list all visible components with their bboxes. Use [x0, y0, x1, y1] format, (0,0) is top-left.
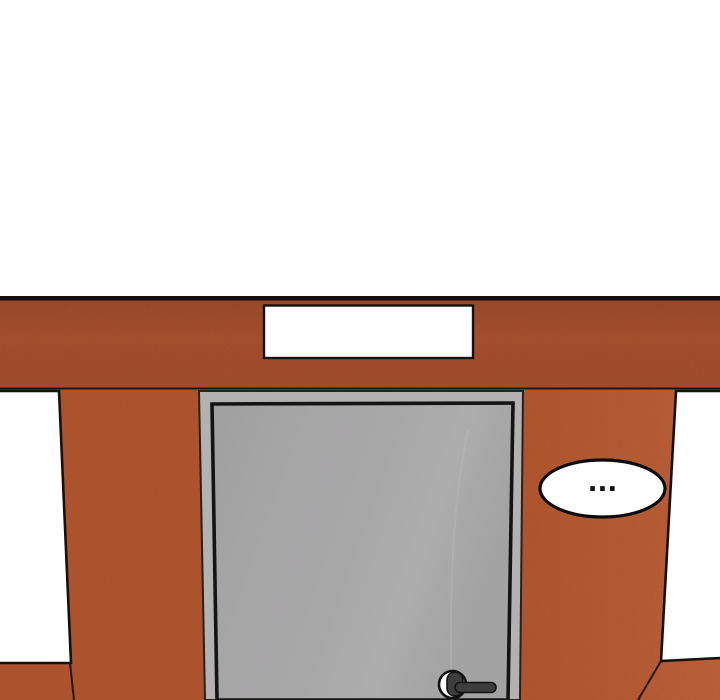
comic-panel: ...	[0, 0, 720, 700]
ellipsis-text: ...	[588, 468, 618, 498]
storefront-fascia	[0, 296, 720, 389]
fascia-top-edge	[0, 296, 720, 301]
speech-bubble: ...	[540, 460, 665, 517]
door-handle-lever	[455, 683, 496, 693]
entrance-door	[199, 391, 523, 700]
door-sheen	[214, 405, 511, 698]
blank-sign	[264, 306, 473, 359]
